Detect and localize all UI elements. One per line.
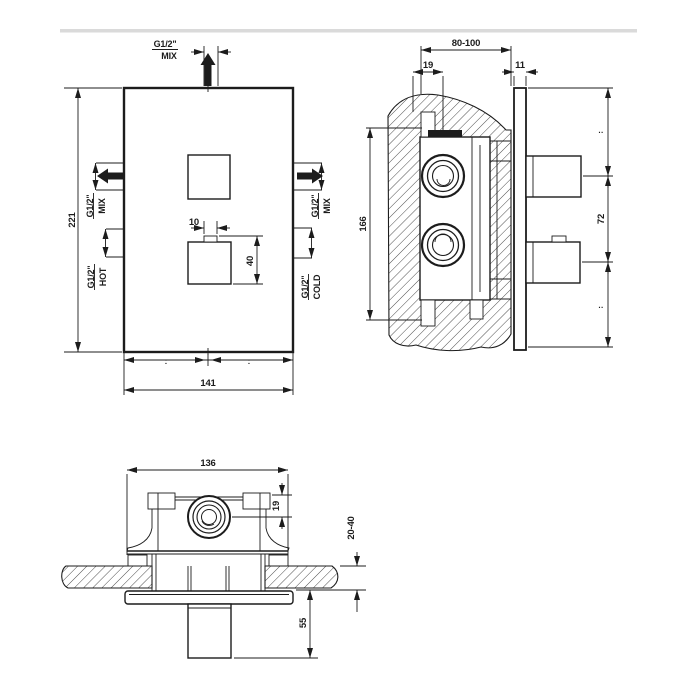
bottom-handle [188,604,231,658]
front-upper-handle [188,155,230,199]
dim-front-width: 141 [200,378,216,389]
section-foot [470,300,483,319]
port-right-cold-label: COLD [312,274,322,299]
front-handle-stem [204,236,217,242]
dim-section-body-height: 166 [358,216,369,231]
section-upper-port [422,155,464,197]
dim-section-depth-range: 80-100 [452,38,480,49]
dim-section-upper-mark: ·· [598,128,603,137]
section-upper-knob [526,156,581,197]
bottom-trim-plate [125,591,293,604]
port-left-mix-label: MIX [97,198,107,214]
dim-section-plate-thickness: 11 [515,60,526,71]
wall-band-right-hatch [265,566,338,588]
dim-front-sub-right: : [248,357,251,366]
dim-front-sub-left: : [165,357,168,366]
dim-bottom-port-depth: 19 [271,501,282,511]
front-lower-handle [188,242,231,284]
port-left-hot-label: HOT [98,267,108,286]
dim-front-stem-width: 10 [189,217,199,228]
section-trim-plate [514,88,526,350]
port-right-mix-label: MIX [322,198,332,214]
bottom-port [188,496,230,538]
dim-section-inlet-offset: 19 [423,60,433,71]
front-plate-outline [124,88,293,352]
section-mounting-tab-bottom [421,300,435,326]
technical-drawing-page: 10 40 : : 141 2 [0,0,700,700]
port-top-mix-thread: G1/2" [154,39,177,49]
section-lower-port [422,224,464,266]
section-bracket-bar [428,130,462,137]
shower-valve-technical-drawing: 10 40 : : 141 2 [0,0,700,700]
dim-front-handle-height: 40 [245,256,256,266]
port-top-mix-label: MIX [161,51,177,61]
dim-bottom-handle-protrusion: 55 [298,617,309,628]
wall-band-left-hatch [62,566,152,588]
top-divider-rule [60,29,637,33]
dim-bottom-wall-range: 20-40 [346,516,357,539]
section-lower-knob [526,242,580,283]
dim-section-lower-mark: ·· [598,303,603,312]
dim-section-handle-pitch: 72 [596,214,607,224]
section-knob-stem [552,236,566,242]
dim-bottom-width: 136 [200,458,215,469]
dim-front-height: 221 [67,211,78,227]
page-background [0,0,700,700]
